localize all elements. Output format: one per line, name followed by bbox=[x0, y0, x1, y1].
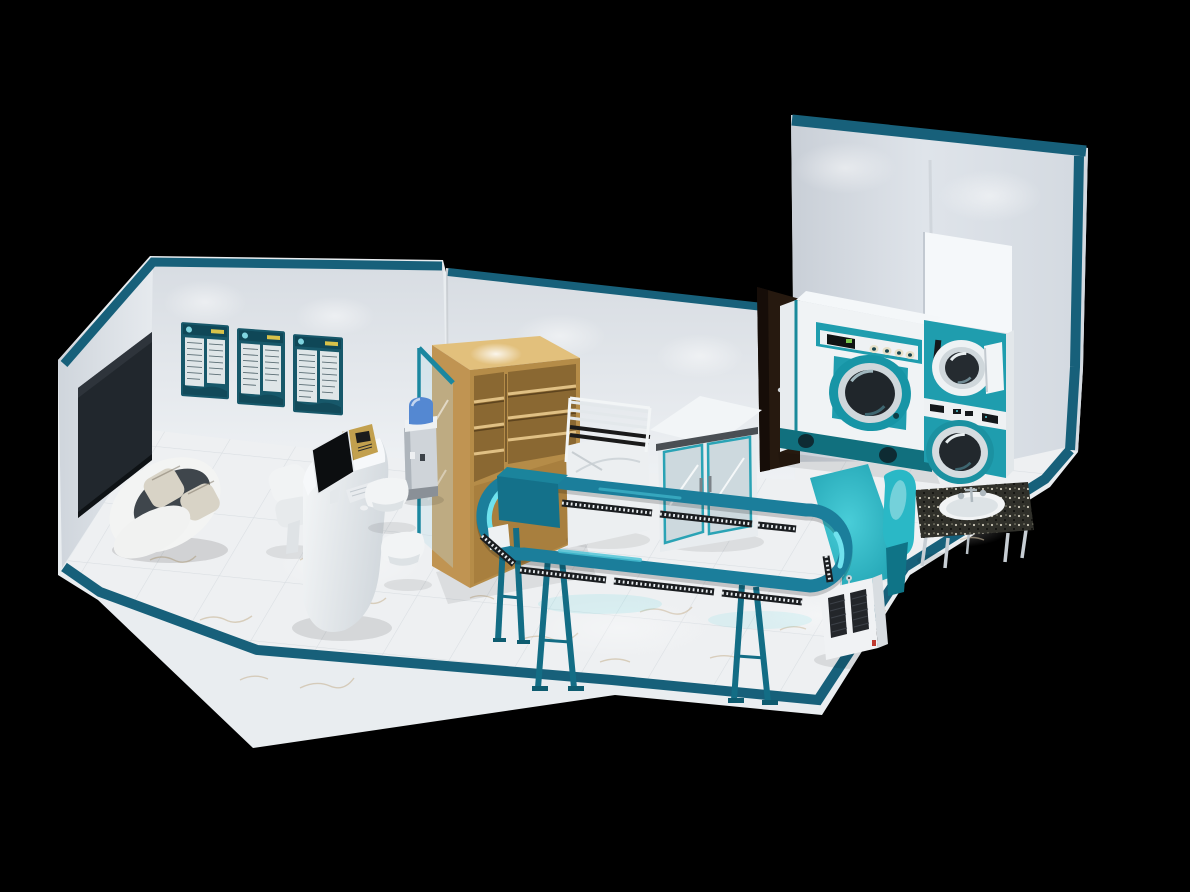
dispenser-tap bbox=[410, 452, 415, 459]
certificate bbox=[237, 328, 285, 407]
sink-table bbox=[915, 482, 1034, 569]
buck-support bbox=[886, 542, 908, 596]
stacked-washer-dryer bbox=[921, 320, 1014, 489]
machine-port bbox=[879, 447, 897, 463]
shelf-light-spot bbox=[470, 343, 522, 365]
certificate bbox=[293, 334, 343, 415]
certificate bbox=[181, 322, 229, 399]
desk-mouse bbox=[360, 506, 368, 511]
laundry-shop-render bbox=[0, 0, 1190, 892]
dispenser-tap bbox=[420, 454, 425, 461]
stack-right-side bbox=[1006, 330, 1014, 478]
table-shadow bbox=[917, 551, 1033, 569]
water-bottle bbox=[409, 397, 433, 425]
conveyor-floor-reflection bbox=[538, 594, 662, 614]
base-tag bbox=[872, 640, 876, 646]
display-cabinet bbox=[650, 396, 764, 552]
render-canvas bbox=[0, 0, 1190, 892]
dry-cleaning-machine bbox=[778, 291, 941, 484]
machine-port bbox=[798, 434, 814, 448]
